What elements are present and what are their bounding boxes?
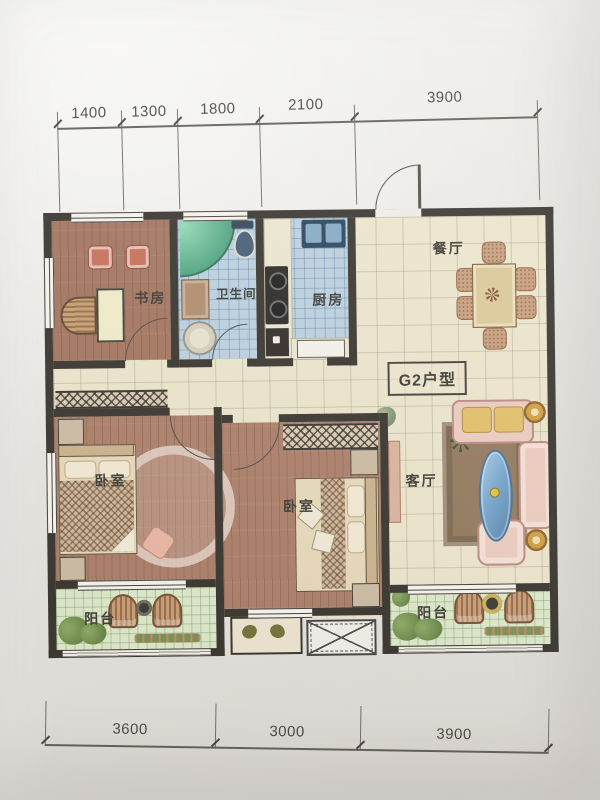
- dimension-line: [45, 744, 548, 753]
- dining-chair-icon: [514, 295, 536, 319]
- window: [71, 212, 143, 223]
- dimension-group-top: 1400 1300 1800 2100 3900: [39, 86, 562, 224]
- dim-label: 3000: [269, 723, 305, 741]
- dim-label: 3900: [436, 726, 472, 744]
- nightstand-icon: [59, 557, 85, 581]
- nightstand-icon: [350, 449, 378, 475]
- extension-line: [537, 100, 540, 200]
- toilet-bowl-icon: [234, 230, 256, 259]
- sink-basin-icon: [305, 224, 321, 243]
- room-label-bathroom: 卫生间: [216, 283, 257, 302]
- flower-box: [230, 616, 302, 655]
- room-label-living: 客厅: [405, 470, 437, 490]
- dining-chair-icon: [514, 267, 536, 291]
- nightstand-icon: [58, 419, 84, 445]
- room-label-dining: 餐厅: [433, 238, 465, 258]
- wall: [421, 207, 553, 217]
- balcony-table-icon: [482, 594, 502, 614]
- side-table-icon: [525, 529, 547, 551]
- wardrobe-icon: [55, 390, 167, 409]
- wall: [279, 413, 380, 422]
- sofa-cushion-icon: [494, 406, 524, 432]
- dim-label: 1400: [71, 104, 107, 122]
- pillow-icon: [64, 461, 96, 479]
- room-label-balcony-right: 阳台: [417, 602, 449, 622]
- wicker-chair-icon: [504, 589, 534, 623]
- blanket-fold-icon: [110, 527, 134, 551]
- dimension-line: [57, 116, 537, 129]
- wall: [327, 357, 357, 365]
- table-decor-icon: [490, 488, 500, 498]
- wardrobe-icon: [283, 423, 378, 450]
- toilet-icon: [231, 221, 253, 229]
- room-label-bedroom-left: 卧室: [94, 470, 126, 490]
- bath-cabinet-icon: [181, 279, 209, 319]
- headboard-icon: [58, 444, 134, 457]
- flower-strip-icon: [484, 626, 544, 636]
- window: [78, 579, 186, 590]
- window: [408, 583, 516, 594]
- window: [183, 211, 247, 222]
- dim-label: 3900: [427, 89, 463, 107]
- window: [46, 453, 57, 533]
- wall: [222, 415, 233, 423]
- desk-icon: [96, 288, 125, 342]
- ac-unit-icon: [306, 619, 376, 656]
- wicker-chair-icon: [152, 593, 182, 627]
- room-label-study: 书房: [134, 288, 166, 308]
- appliance-icon: [297, 339, 345, 358]
- table-motif-icon: [485, 288, 499, 302]
- dim-label: 3600: [112, 721, 148, 739]
- wall: [167, 359, 179, 367]
- room-label-bedroom-mid: 卧室: [283, 496, 315, 516]
- wall: [53, 360, 125, 369]
- pillow-icon: [347, 485, 365, 517]
- wall: [179, 359, 212, 367]
- dining-chair-icon: [482, 241, 506, 263]
- pillow-icon: [347, 521, 365, 553]
- sofa-cushion-icon: [462, 407, 492, 433]
- dim-label: 1300: [131, 103, 167, 121]
- room-label-kitchen: 厨房: [312, 289, 344, 309]
- window: [248, 608, 312, 619]
- wall: [54, 408, 170, 417]
- tv-cabinet-icon: [388, 441, 401, 523]
- dim-label: 2100: [288, 96, 324, 114]
- entrance-door-leaf: [418, 165, 421, 209]
- room-label-balcony-left: 阳台: [84, 608, 116, 628]
- desk-chair-icon: [60, 296, 96, 334]
- balcony-table-icon: [136, 600, 152, 616]
- nightstand-icon: [352, 583, 380, 607]
- wicker-chair-icon: [454, 590, 484, 624]
- faucet-icon: [273, 336, 280, 343]
- burner-icon: [269, 300, 287, 318]
- flower-strip-icon: [134, 633, 200, 643]
- side-table-icon: [524, 401, 546, 423]
- unit-type-label: G2户型: [387, 361, 467, 396]
- chair-cushion-icon: [88, 245, 113, 269]
- sink-basin-icon: [325, 223, 341, 242]
- wall: [247, 358, 293, 367]
- dining-chair-icon: [483, 327, 507, 349]
- chair-cushion-icon: [126, 245, 150, 269]
- headboard-icon: [365, 477, 378, 589]
- window: [44, 258, 55, 328]
- dimension-group-bottom: 3600 3000 3900: [29, 698, 570, 776]
- floorplan: 书房 卫生间 厨房 餐厅 客厅 卧室 卧室 阳台 阳台 G2户型: [43, 207, 558, 661]
- burner-icon: [269, 272, 287, 290]
- dim-label: 1800: [200, 100, 236, 118]
- floorplan-photo: 1400 1300 1800 2100 3900 3600 3000 3900: [0, 0, 600, 800]
